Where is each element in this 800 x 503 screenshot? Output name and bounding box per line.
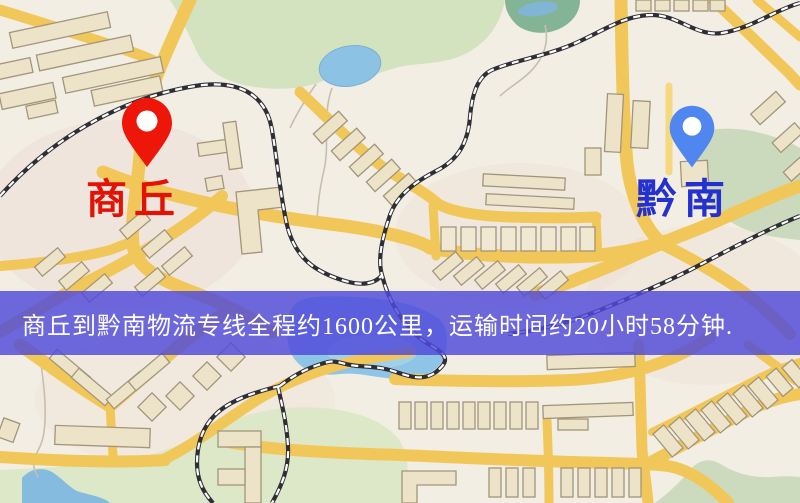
destination-pin-hole xyxy=(683,117,702,136)
destination-city-label: 黔南 xyxy=(636,179,732,220)
logistics-route-map: 商丘 黔南 商丘到黔南物流专线全程约1600公里，运输时间约20小时58分钟. xyxy=(0,0,800,503)
destination-pin-icon xyxy=(666,104,718,170)
route-info-banner: 商丘到黔南物流专线全程约1600公里，运输时间约20小时58分钟. xyxy=(0,291,800,355)
destination-pin-body xyxy=(670,106,715,168)
origin-city-label: 商丘 xyxy=(86,179,182,220)
origin-pin-hole xyxy=(137,111,158,132)
route-info-text: 商丘到黔南物流专线全程约1600公里，运输时间约20小时58分钟. xyxy=(22,306,733,341)
origin-pin-body xyxy=(122,98,172,167)
map-background xyxy=(0,0,800,503)
origin-pin-icon xyxy=(118,96,176,170)
